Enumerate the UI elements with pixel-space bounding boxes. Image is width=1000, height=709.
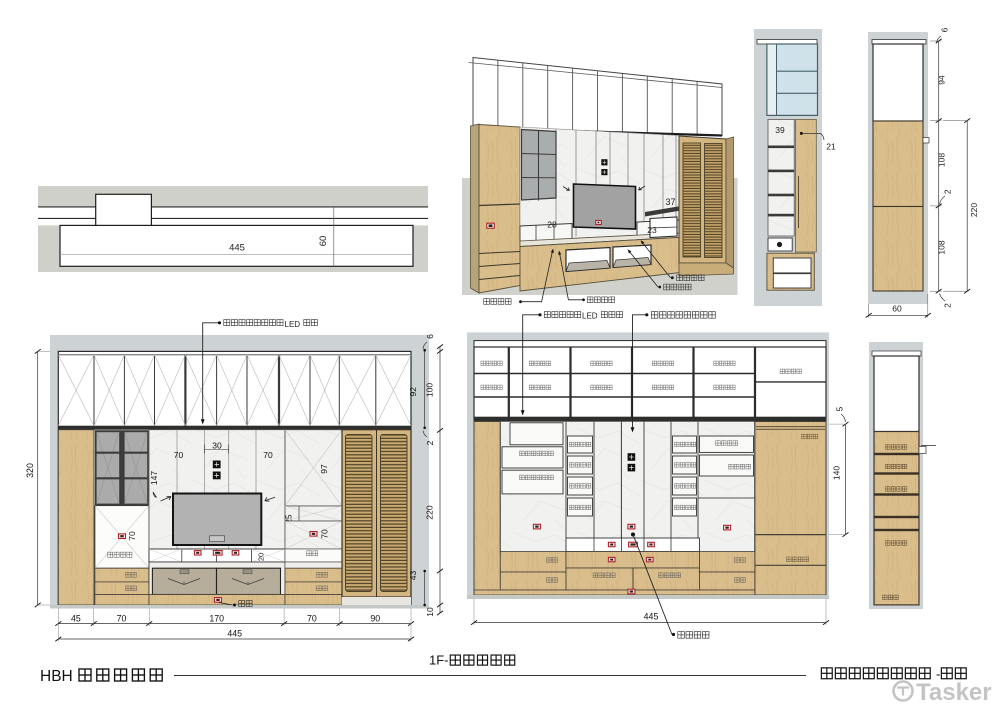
- svg-text:445: 445: [229, 243, 245, 254]
- svg-text:70: 70: [263, 450, 273, 460]
- svg-text:45: 45: [71, 613, 81, 623]
- svg-text:94: 94: [937, 75, 947, 85]
- svg-text:20: 20: [256, 553, 265, 561]
- svg-text:220: 220: [424, 505, 434, 519]
- svg-text:70: 70: [320, 529, 330, 539]
- svg-text:28: 28: [547, 220, 557, 230]
- svg-text:37: 37: [665, 197, 675, 207]
- svg-text:1F-: 1F-: [429, 653, 449, 668]
- svg-text:108: 108: [937, 153, 947, 167]
- svg-text:60: 60: [892, 304, 902, 314]
- svg-text:70: 70: [117, 613, 127, 623]
- svg-text:Tasker: Tasker: [916, 679, 992, 706]
- svg-text:LED: LED: [582, 312, 598, 321]
- svg-text:21: 21: [826, 142, 836, 152]
- svg-text:43: 43: [408, 571, 418, 581]
- svg-text:30: 30: [212, 441, 222, 451]
- svg-text:HBH: HBH: [40, 668, 73, 685]
- svg-text:5: 5: [836, 406, 845, 411]
- svg-text:10: 10: [425, 607, 435, 617]
- svg-text:100: 100: [424, 383, 434, 397]
- svg-text:6: 6: [425, 334, 435, 339]
- svg-text:108: 108: [937, 240, 947, 254]
- svg-text:LED: LED: [285, 320, 301, 329]
- svg-text:97: 97: [319, 464, 329, 474]
- svg-text:70: 70: [307, 613, 317, 623]
- svg-text:170: 170: [209, 613, 224, 623]
- svg-text:23: 23: [647, 225, 657, 235]
- svg-text:220: 220: [969, 203, 979, 217]
- svg-text:90: 90: [370, 613, 380, 623]
- svg-text:39: 39: [775, 125, 785, 135]
- svg-text:445: 445: [227, 629, 242, 639]
- svg-text:2: 2: [943, 303, 953, 308]
- svg-text:60: 60: [318, 236, 329, 247]
- svg-text:320: 320: [25, 463, 35, 478]
- svg-text:70: 70: [174, 450, 184, 460]
- svg-text:70: 70: [127, 531, 137, 541]
- svg-text:147: 147: [149, 471, 159, 485]
- svg-text:140: 140: [832, 466, 842, 480]
- svg-text:6: 6: [940, 27, 950, 32]
- svg-text:2: 2: [425, 440, 435, 445]
- svg-text:445: 445: [644, 612, 659, 622]
- svg-text:2: 2: [943, 189, 953, 194]
- svg-text:92: 92: [408, 387, 418, 397]
